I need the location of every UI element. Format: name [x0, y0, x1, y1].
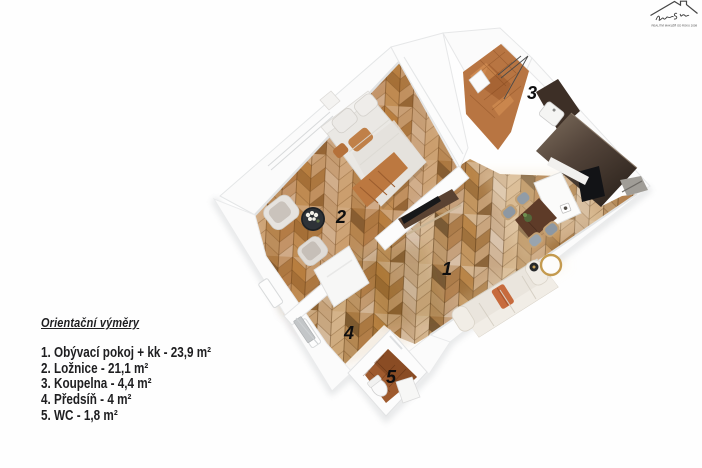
- svg-text:3: 3: [527, 83, 537, 103]
- svg-text:REALITNÍ MAKLÉŘ OD ROKU 2008: REALITNÍ MAKLÉŘ OD ROKU 2008: [652, 22, 698, 27]
- svg-text:2: 2: [335, 207, 346, 227]
- svg-text:1: 1: [442, 259, 452, 279]
- svg-text:4: 4: [343, 323, 354, 343]
- svg-text:5: 5: [386, 367, 397, 387]
